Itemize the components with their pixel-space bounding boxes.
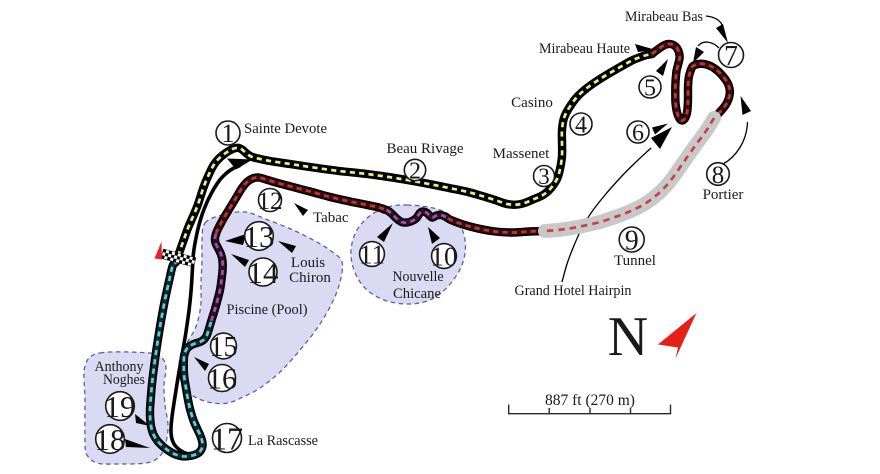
svg-text:Louis: Louis [291,255,325,271]
svg-text:9: 9 [625,225,639,256]
svg-text:Beau Rivage: Beau Rivage [386,141,463,157]
svg-text:1: 1 [222,119,235,148]
svg-text:Sainte Devote: Sainte Devote [244,121,327,137]
svg-text:17: 17 [211,420,243,456]
svg-text:Massenet: Massenet [493,146,550,162]
svg-text:12: 12 [258,188,283,215]
svg-text:18: 18 [95,422,126,457]
svg-text:15: 15 [210,332,238,363]
svg-text:4: 4 [575,113,587,139]
svg-text:7: 7 [724,41,738,72]
svg-text:Tabac: Tabac [313,210,349,226]
svg-text:13: 13 [244,219,275,254]
svg-text:Grand Hotel Hairpin: Grand Hotel Hairpin [515,283,632,299]
svg-text:Noghes: Noghes [103,372,145,388]
svg-text:16: 16 [207,363,237,396]
svg-text:14: 14 [248,255,280,290]
svg-text:Piscine (Pool): Piscine (Pool) [227,302,308,318]
svg-text:6: 6 [632,121,644,147]
svg-text:11: 11 [359,240,385,270]
svg-text:Chiron: Chiron [289,270,331,286]
svg-text:Chicane: Chicane [393,286,441,302]
svg-text:887 ft (270 m): 887 ft (270 m) [545,392,635,409]
svg-text:10: 10 [431,242,458,272]
svg-text:Portier: Portier [703,187,744,203]
svg-text:Mirabeau Haute: Mirabeau Haute [539,41,630,57]
svg-text:La Rascasse: La Rascasse [248,433,318,449]
svg-text:N: N [608,306,648,368]
svg-text:19: 19 [105,389,136,424]
svg-text:Mirabeau Bas: Mirabeau Bas [625,9,703,25]
svg-text:Nouvelle: Nouvelle [393,269,444,285]
svg-text:5: 5 [644,76,656,102]
svg-text:3: 3 [538,164,550,189]
svg-text:8: 8 [712,162,725,189]
svg-text:Tunnel: Tunnel [614,253,656,269]
svg-text:Casino: Casino [511,95,553,111]
svg-text:2: 2 [409,159,421,185]
